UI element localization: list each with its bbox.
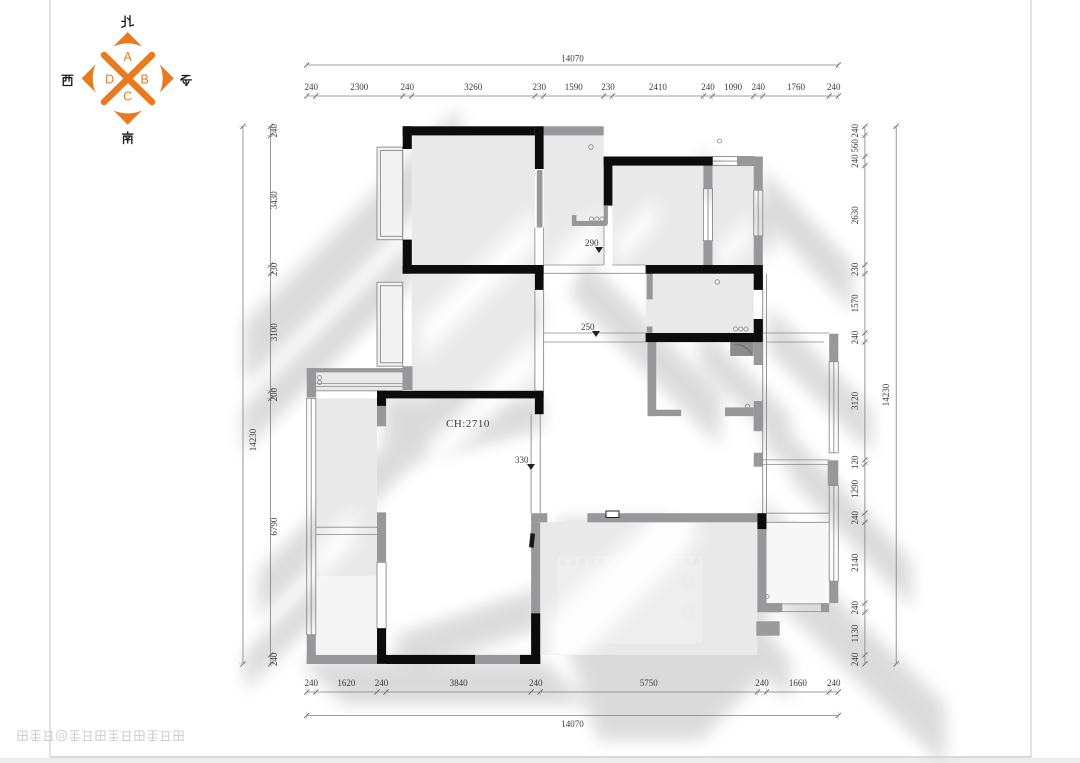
- svg-text:3260: 3260: [464, 82, 483, 92]
- svg-text:1590: 1590: [565, 82, 584, 92]
- svg-text:240: 240: [400, 82, 414, 92]
- svg-text:C: C: [123, 90, 132, 104]
- svg-text:2140: 2140: [850, 553, 860, 572]
- svg-text:290: 290: [585, 238, 599, 248]
- svg-text:200: 200: [269, 387, 279, 401]
- svg-text:240: 240: [304, 82, 318, 92]
- svg-text:1660: 1660: [789, 678, 808, 688]
- svg-text:1290: 1290: [850, 479, 860, 498]
- svg-text:240: 240: [850, 511, 860, 525]
- svg-text:240: 240: [827, 678, 841, 688]
- svg-text:230: 230: [850, 262, 860, 276]
- svg-text:240: 240: [850, 124, 860, 138]
- svg-text:3100: 3100: [269, 323, 279, 342]
- svg-text:A: A: [124, 50, 133, 64]
- svg-text:6790: 6790: [269, 517, 279, 536]
- svg-text:230: 230: [601, 82, 615, 92]
- svg-text:1090: 1090: [724, 82, 743, 92]
- svg-text:240: 240: [850, 652, 860, 666]
- svg-text:B: B: [141, 73, 149, 87]
- svg-text:2300: 2300: [350, 82, 369, 92]
- svg-text:240: 240: [827, 82, 841, 92]
- svg-text:2410: 2410: [649, 82, 668, 92]
- svg-text:3840: 3840: [450, 678, 469, 688]
- svg-text:120: 120: [850, 455, 860, 469]
- svg-text:240: 240: [755, 678, 769, 688]
- svg-text:240: 240: [850, 154, 860, 168]
- svg-text:14070: 14070: [561, 719, 584, 729]
- svg-text:330: 330: [515, 455, 529, 465]
- svg-text:240: 240: [850, 330, 860, 344]
- svg-text:240: 240: [751, 82, 765, 92]
- svg-text:240: 240: [850, 600, 860, 614]
- svg-text:240: 240: [529, 678, 543, 688]
- svg-text:1570: 1570: [850, 294, 860, 313]
- svg-text:560: 560: [850, 139, 860, 153]
- svg-text:1130: 1130: [850, 624, 860, 642]
- svg-text:240: 240: [375, 678, 389, 688]
- svg-text:240: 240: [269, 124, 279, 138]
- svg-text:250: 250: [581, 322, 595, 332]
- svg-text:14230: 14230: [881, 383, 891, 406]
- svg-text:5750: 5750: [640, 678, 659, 688]
- svg-text:14070: 14070: [561, 54, 584, 64]
- svg-text:CH:2710: CH:2710: [446, 418, 490, 430]
- svg-text:240: 240: [304, 678, 318, 688]
- svg-text:3430: 3430: [269, 191, 279, 210]
- svg-text:3120: 3120: [850, 391, 860, 410]
- svg-text:230: 230: [532, 82, 546, 92]
- svg-text:240: 240: [701, 82, 715, 92]
- svg-text:D: D: [105, 73, 114, 87]
- svg-text:14230: 14230: [248, 428, 258, 451]
- svg-text:1620: 1620: [337, 678, 356, 688]
- svg-text:230: 230: [269, 262, 279, 276]
- svg-text:2630: 2630: [850, 206, 860, 225]
- svg-text:240: 240: [269, 652, 279, 666]
- svg-text:1760: 1760: [787, 82, 806, 92]
